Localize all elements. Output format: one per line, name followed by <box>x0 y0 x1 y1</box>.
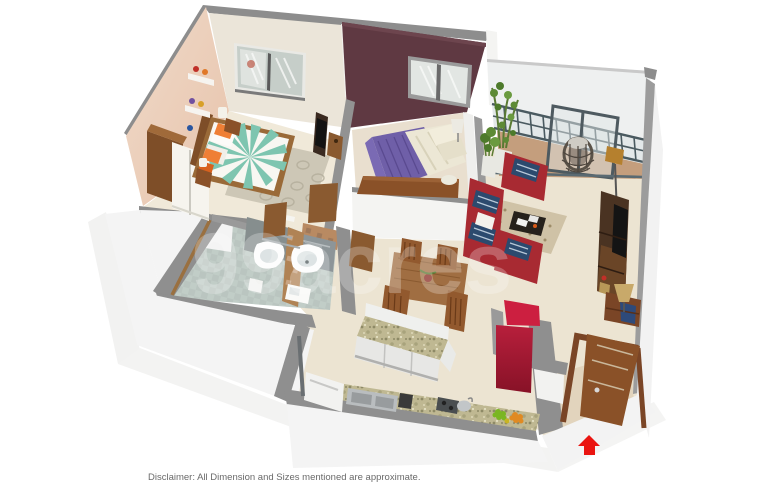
svg-text:Disclaimer: All Dimension and: Disclaimer: All Dimension and Sizes ment… <box>148 472 420 483</box>
svg-text:99acres: 99acres <box>192 216 512 312</box>
